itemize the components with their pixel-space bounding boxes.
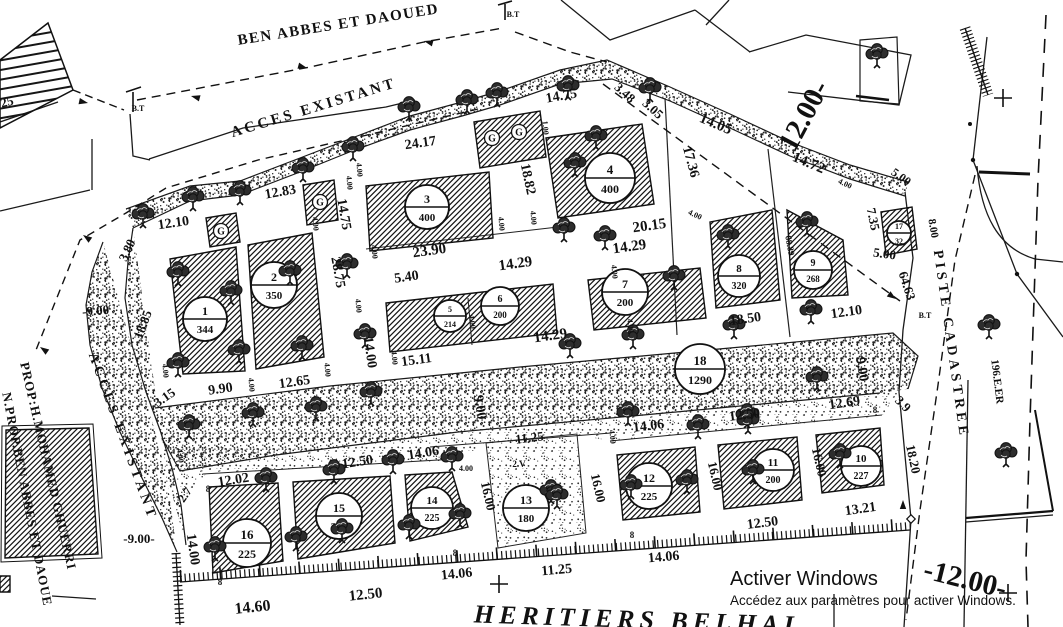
svg-text:18: 18 — [694, 353, 708, 368]
svg-text:4.00: 4.00 — [160, 363, 170, 378]
svg-text:32: 32 — [895, 237, 903, 246]
svg-text:4.00: 4.00 — [353, 298, 363, 313]
svg-text:B.T: B.T — [507, 10, 520, 19]
svg-text:1290: 1290 — [688, 373, 712, 387]
svg-text:227: 227 — [854, 471, 869, 482]
svg-text:1.00: 1.00 — [540, 120, 550, 135]
svg-text:180: 180 — [518, 513, 535, 525]
svg-text:8: 8 — [206, 484, 211, 494]
svg-text:400: 400 — [419, 212, 436, 224]
svg-text:350: 350 — [266, 290, 283, 302]
svg-text:4.00: 4.00 — [389, 350, 399, 365]
svg-text:8: 8 — [873, 405, 878, 415]
svg-text:14: 14 — [427, 495, 439, 507]
svg-text:12: 12 — [643, 471, 655, 485]
svg-text:G: G — [488, 134, 496, 145]
svg-text:214: 214 — [444, 320, 456, 329]
svg-text:G: G — [316, 198, 324, 209]
svg-text:225: 225 — [238, 547, 256, 561]
svg-text:10: 10 — [856, 453, 868, 465]
svg-text:B.T: B.T — [132, 104, 145, 113]
svg-text:16: 16 — [241, 527, 255, 542]
svg-text:3: 3 — [424, 192, 430, 206]
svg-text:4.00: 4.00 — [246, 377, 256, 392]
svg-text:-9.00-: -9.00- — [123, 531, 154, 546]
svg-text:400: 400 — [601, 182, 619, 196]
svg-text:4.00: 4.00 — [369, 244, 379, 259]
svg-text:4.00: 4.00 — [322, 362, 332, 377]
svg-text:200: 200 — [766, 475, 781, 486]
svg-text:200: 200 — [493, 310, 507, 320]
svg-text:344: 344 — [197, 324, 214, 336]
svg-text:4.00: 4.00 — [467, 314, 477, 329]
svg-text:4.00: 4.00 — [344, 175, 354, 190]
svg-text:17: 17 — [895, 222, 903, 231]
svg-text:8: 8 — [630, 530, 635, 540]
svg-text:4.00: 4.00 — [528, 210, 538, 225]
svg-text:8: 8 — [453, 548, 458, 558]
svg-text:225: 225 — [425, 513, 440, 524]
svg-text:11.25: 11.25 — [541, 562, 573, 580]
svg-text:4.00: 4.00 — [609, 264, 619, 279]
svg-text:4.00: 4.00 — [310, 216, 320, 231]
svg-text:-9.00: -9.00 — [81, 302, 109, 319]
svg-text:13: 13 — [520, 493, 532, 507]
svg-text:5.00: 5.00 — [872, 245, 897, 263]
svg-text:4.00: 4.00 — [175, 448, 185, 463]
svg-text:G: G — [515, 128, 523, 139]
svg-text:200: 200 — [617, 297, 634, 309]
svg-text:320: 320 — [732, 281, 747, 292]
svg-text:4.00: 4.00 — [625, 318, 635, 333]
svg-text:9: 9 — [811, 258, 816, 269]
svg-text:4.00: 4.00 — [496, 216, 506, 231]
svg-text:4: 4 — [607, 162, 614, 177]
svg-text:1: 1 — [202, 304, 208, 318]
svg-text:4.00: 4.00 — [459, 464, 473, 473]
svg-text:B.T: B.T — [919, 311, 932, 320]
svg-text:14.06: 14.06 — [647, 549, 680, 567]
svg-text:2: 2 — [271, 270, 277, 284]
svg-text:225: 225 — [641, 491, 658, 503]
svg-text:15: 15 — [333, 501, 345, 515]
svg-text:G: G — [217, 227, 225, 238]
svg-text:11: 11 — [768, 457, 778, 469]
svg-text:5: 5 — [448, 305, 452, 314]
svg-text:8: 8 — [218, 577, 223, 587]
svg-text:4.00: 4.00 — [607, 429, 617, 444]
svg-text:4.00: 4.00 — [354, 162, 364, 177]
svg-text:7: 7 — [622, 277, 628, 291]
svg-text:Activer Windows: Activer Windows — [730, 568, 878, 590]
svg-text:2.V: 2.V — [512, 459, 526, 469]
svg-text:6: 6 — [498, 294, 503, 305]
svg-text:268: 268 — [806, 274, 820, 284]
svg-text:8: 8 — [736, 263, 742, 275]
